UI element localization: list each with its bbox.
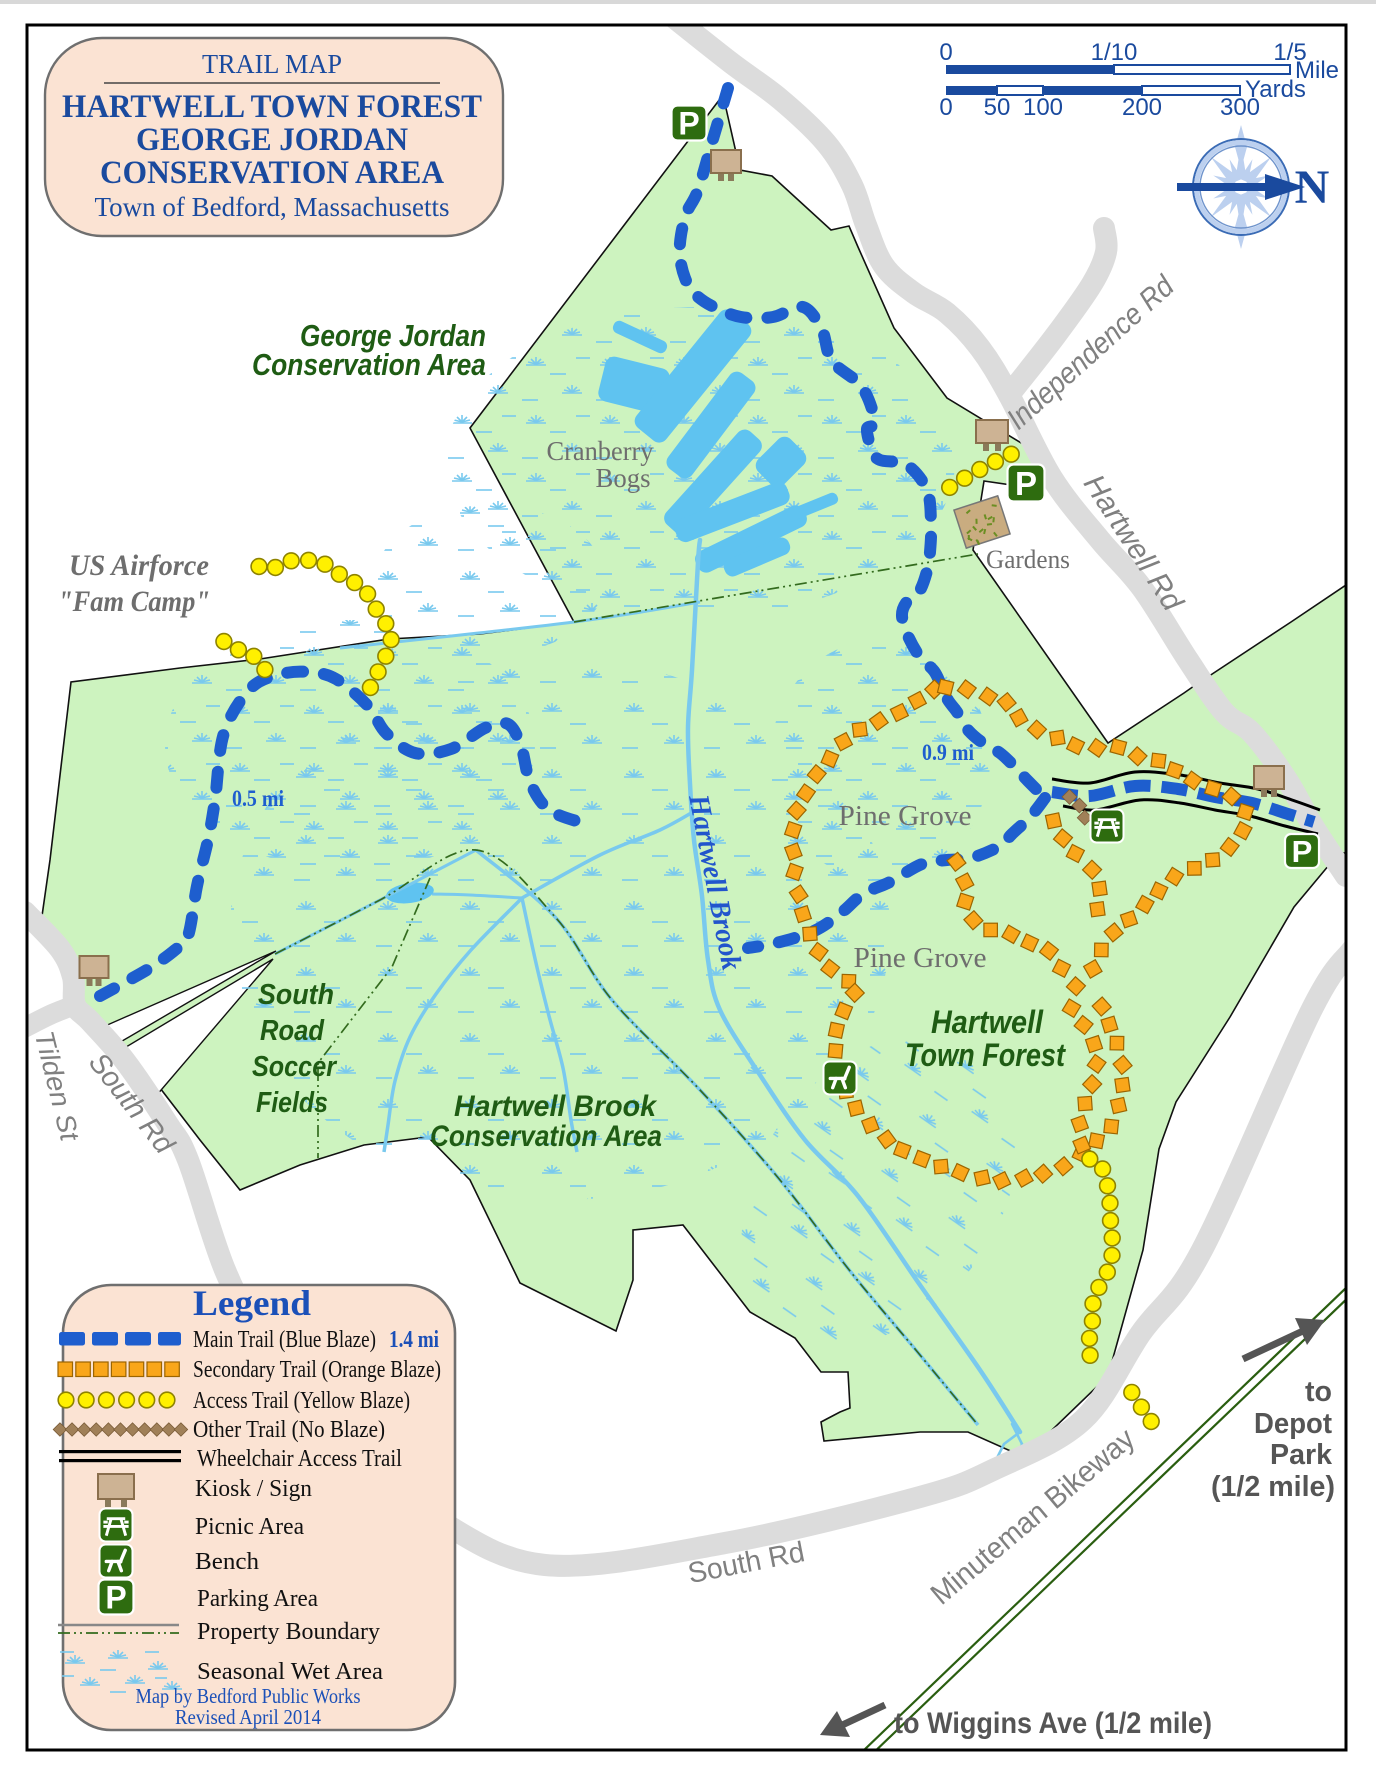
- svg-text:(1/2 mile): (1/2 mile): [1211, 1471, 1335, 1503]
- svg-text:0: 0: [939, 39, 952, 66]
- svg-text:Park: Park: [1270, 1439, 1333, 1471]
- svg-text:to Wiggins Ave (1/2 mile): to Wiggins Ave (1/2 mile): [894, 1707, 1212, 1740]
- svg-text:Access Trail (Yellow Blaze): Access Trail (Yellow Blaze): [193, 1388, 410, 1414]
- svg-text:Bogs: Bogs: [596, 463, 651, 493]
- svg-text:P: P: [1292, 834, 1313, 869]
- svg-text:0.9 mi: 0.9 mi: [922, 740, 975, 765]
- svg-text:Pine Grove: Pine Grove: [854, 943, 987, 974]
- svg-text:Property Boundary: Property Boundary: [197, 1619, 380, 1645]
- svg-text:Soccer: Soccer: [252, 1051, 337, 1083]
- svg-text:Pine Grove: Pine Grove: [839, 801, 972, 832]
- svg-text:Road: Road: [260, 1015, 325, 1047]
- svg-text:Main Trail (Blue Blaze): Main Trail (Blue Blaze): [193, 1327, 376, 1353]
- svg-text:Other Trail (No Blaze): Other Trail (No Blaze): [193, 1417, 385, 1443]
- svg-text:Gardens: Gardens: [986, 545, 1070, 574]
- svg-text:100: 100: [1023, 94, 1063, 121]
- svg-text:P: P: [105, 1580, 126, 1616]
- svg-text:Kiosk / Sign: Kiosk / Sign: [195, 1476, 312, 1502]
- svg-text:1.4 mi: 1.4 mi: [389, 1327, 439, 1353]
- svg-text:Legend: Legend: [193, 1283, 311, 1323]
- svg-text:Picnic Area: Picnic Area: [195, 1514, 304, 1540]
- svg-text:0: 0: [939, 94, 952, 121]
- svg-text:Yards: Yards: [1245, 76, 1306, 103]
- svg-text:Hartwell: Hartwell: [931, 1004, 1044, 1040]
- svg-text:Hartwell Brook: Hartwell Brook: [454, 1090, 657, 1123]
- svg-text:Wheelchair Access Trail: Wheelchair Access Trail: [197, 1446, 402, 1472]
- svg-text:P: P: [1015, 465, 1037, 502]
- svg-text:Parking Area: Parking Area: [197, 1586, 318, 1612]
- svg-text:Conservation Area: Conservation Area: [430, 1120, 662, 1153]
- svg-text:0.5 mi: 0.5 mi: [232, 786, 285, 811]
- svg-text:N: N: [1295, 161, 1330, 214]
- svg-text:1/10: 1/10: [1091, 39, 1138, 66]
- svg-text:South: South: [258, 979, 334, 1011]
- svg-text:TRAIL MAP: TRAIL MAP: [202, 49, 342, 79]
- svg-text:Revised April 2014: Revised April 2014: [175, 1705, 321, 1729]
- svg-text:200: 200: [1122, 94, 1162, 121]
- svg-text:Bench: Bench: [195, 1549, 259, 1575]
- svg-text:Seasonal Wet Area: Seasonal Wet Area: [197, 1659, 383, 1685]
- svg-text:"Fam Camp": "Fam Camp": [58, 585, 210, 618]
- svg-text:Fields: Fields: [256, 1087, 328, 1119]
- svg-text:GEORGE JORDAN: GEORGE JORDAN: [136, 122, 408, 158]
- svg-text:Secondary Trail (Orange Blaze): Secondary Trail (Orange Blaze): [193, 1357, 441, 1383]
- svg-text:Town of Bedford, Massachusetts: Town of Bedford, Massachusetts: [95, 192, 450, 222]
- svg-text:P: P: [678, 106, 699, 142]
- svg-text:Cranberry: Cranberry: [547, 436, 654, 466]
- svg-text:US Airforce: US Airforce: [69, 549, 209, 582]
- svg-text:50: 50: [984, 94, 1011, 121]
- svg-text:Town Forest: Town Forest: [905, 1037, 1066, 1073]
- svg-text:to: to: [1305, 1376, 1332, 1408]
- svg-text:HARTWELL TOWN FOREST: HARTWELL TOWN FOREST: [62, 89, 482, 125]
- svg-text:CONSERVATION AREA: CONSERVATION AREA: [100, 155, 444, 191]
- svg-text:Conservation Area: Conservation Area: [252, 347, 486, 382]
- svg-text:Depot: Depot: [1254, 1408, 1332, 1440]
